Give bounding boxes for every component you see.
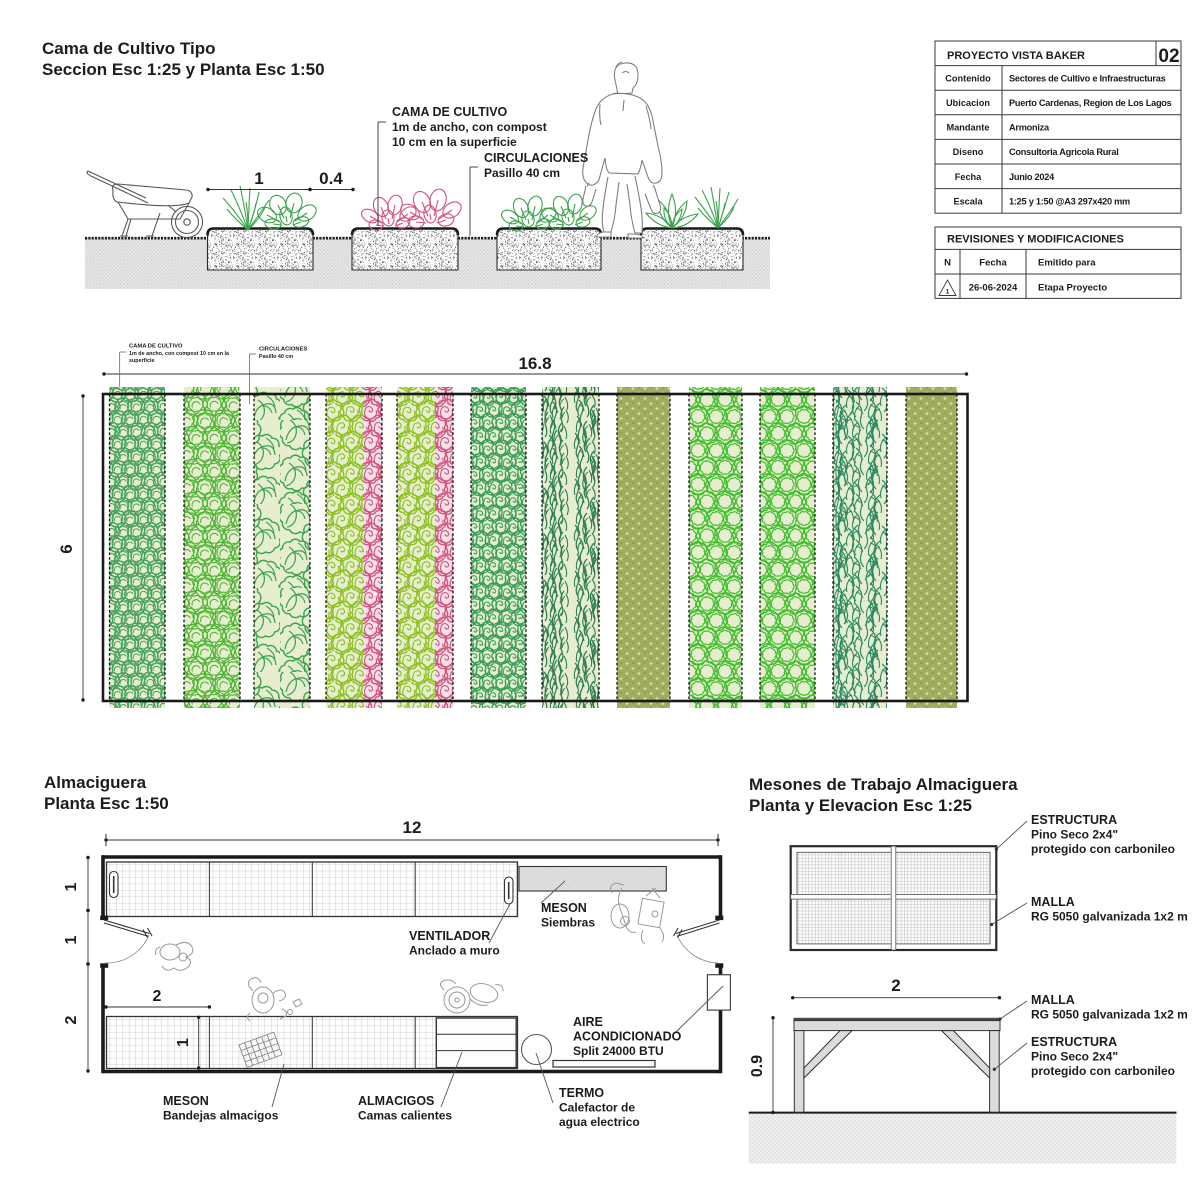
svg-text:MESON: MESON xyxy=(541,901,587,915)
svg-text:Siembras: Siembras xyxy=(541,916,595,930)
svg-text:RG 5050 galvanizada 1x2 m: RG 5050 galvanizada 1x2 m xyxy=(1031,910,1188,924)
svg-text:Armoniza: Armoniza xyxy=(1009,123,1050,133)
svg-text:1: 1 xyxy=(63,882,80,891)
svg-text:Sectores de Cultivo e Infraest: Sectores de Cultivo e Infraestructuras xyxy=(1009,73,1166,83)
svg-text:Anclado a muro: Anclado a muro xyxy=(409,944,500,958)
svg-text:AIRE: AIRE xyxy=(573,1015,603,1029)
svg-text:Escala: Escala xyxy=(953,196,983,206)
svg-text:6: 6 xyxy=(57,544,76,553)
svg-text:2: 2 xyxy=(63,1015,80,1024)
svg-text:Mandante: Mandante xyxy=(947,123,990,133)
svg-text:Contenido: Contenido xyxy=(945,73,991,83)
svg-text:CIRCULACIONES: CIRCULACIONES xyxy=(259,347,307,353)
svg-text:CAMA DE CULTIVO: CAMA DE CULTIVO xyxy=(129,344,183,350)
svg-text:ESTRUCTURA: ESTRUCTURA xyxy=(1031,813,1117,827)
svg-text:Split 24000 BTU: Split 24000 BTU xyxy=(573,1044,664,1058)
svg-text:Puerto Cardenas, Region de Los: Puerto Cardenas, Region de Los Lagos xyxy=(1009,98,1172,108)
svg-text:2: 2 xyxy=(153,988,162,1005)
svg-text:superficie: superficie xyxy=(129,358,154,364)
svg-text:MALLA: MALLA xyxy=(1031,895,1075,909)
svg-text:Pino Seco 2x4": Pino Seco 2x4" xyxy=(1031,828,1118,842)
svg-text:VENTILADOR: VENTILADOR xyxy=(409,929,490,943)
svg-text:Camas calientes: Camas calientes xyxy=(358,1109,452,1123)
svg-text:Planta y Elevacion Esc 1:25: Planta y Elevacion Esc 1:25 xyxy=(749,796,972,815)
svg-text:ESTRUCTURA: ESTRUCTURA xyxy=(1031,1035,1117,1049)
svg-text:Junio 2024: Junio 2024 xyxy=(1009,172,1055,182)
svg-text:Fecha: Fecha xyxy=(979,257,1007,268)
svg-text:RG 5050 galvanizada 1x2 m: RG 5050 galvanizada 1x2 m xyxy=(1031,1008,1188,1022)
svg-text:Bandejas almacigos: Bandejas almacigos xyxy=(163,1109,279,1123)
svg-text:10 cm en la superficie: 10 cm en la superficie xyxy=(392,135,517,149)
svg-text:Seccion Esc 1:25 y Planta Esc: Seccion Esc 1:25 y Planta Esc 1:50 xyxy=(42,60,325,79)
svg-text:1m de ancho, con compost: 1m de ancho, con compost xyxy=(392,120,547,134)
svg-text:Calefactor de: Calefactor de xyxy=(559,1101,635,1115)
svg-text:protegido con carbonileo: protegido con carbonileo xyxy=(1031,842,1175,856)
svg-text:Pino Seco 2x4": Pino Seco 2x4" xyxy=(1031,1050,1118,1064)
svg-text:Emitido para: Emitido para xyxy=(1038,257,1096,268)
svg-text:1:25 y 1:50 @A3 297x420 mm: 1:25 y 1:50 @A3 297x420 mm xyxy=(1009,196,1130,206)
svg-text:CIRCULACIONES: CIRCULACIONES xyxy=(484,151,588,165)
svg-text:1: 1 xyxy=(63,935,80,944)
svg-text:CAMA DE CULTIVO: CAMA DE CULTIVO xyxy=(392,105,508,119)
svg-text:PROYECTO VISTA BAKER: PROYECTO VISTA BAKER xyxy=(947,50,1085,62)
svg-text:Almaciguera: Almaciguera xyxy=(44,773,147,792)
svg-text:Pasillo 40 cm: Pasillo 40 cm xyxy=(484,166,560,180)
svg-text:N: N xyxy=(944,257,951,268)
svg-text:2: 2 xyxy=(891,976,900,995)
svg-text:ALMACIGOS: ALMACIGOS xyxy=(358,1094,434,1108)
svg-text:1m de ancho, con compost 10 cm: 1m de ancho, con compost 10 cm en la xyxy=(129,351,230,357)
svg-text:Diseno: Diseno xyxy=(953,147,984,157)
svg-text:Consultoria Agricola Rural: Consultoria Agricola Rural xyxy=(1009,147,1119,157)
svg-text:16.8: 16.8 xyxy=(518,354,551,373)
svg-text:ACONDICIONADO: ACONDICIONADO xyxy=(573,1030,682,1044)
svg-text:26-06-2024: 26-06-2024 xyxy=(969,282,1018,293)
svg-text:protegido con carbonileo: protegido con carbonileo xyxy=(1031,1064,1175,1078)
svg-text:Pasillo 40 cm: Pasillo 40 cm xyxy=(259,354,293,360)
svg-text:02: 02 xyxy=(1158,46,1179,67)
svg-text:agua electrico: agua electrico xyxy=(559,1115,640,1129)
svg-text:Fecha: Fecha xyxy=(955,172,982,182)
svg-text:0.4: 0.4 xyxy=(319,169,343,188)
svg-text:Ubicacion: Ubicacion xyxy=(946,98,990,108)
svg-text:1: 1 xyxy=(946,289,950,296)
svg-text:MESON: MESON xyxy=(163,1094,209,1108)
svg-text:MALLA: MALLA xyxy=(1031,993,1075,1007)
svg-text:12: 12 xyxy=(403,818,422,837)
svg-text:0.9: 0.9 xyxy=(749,1055,766,1077)
svg-text:TERMO: TERMO xyxy=(559,1086,604,1100)
svg-text:1: 1 xyxy=(254,169,263,188)
svg-text:Mesones de Trabajo Almaciguera: Mesones de Trabajo Almaciguera xyxy=(749,775,1018,794)
svg-text:1: 1 xyxy=(175,1038,192,1047)
svg-text:Planta Esc 1:50: Planta Esc 1:50 xyxy=(44,794,169,813)
svg-text:Etapa Proyecto: Etapa Proyecto xyxy=(1038,282,1107,293)
svg-text:Cama de Cultivo Tipo: Cama de Cultivo Tipo xyxy=(42,39,216,58)
svg-text:REVISIONES Y MODIFICACIONES: REVISIONES Y MODIFICACIONES xyxy=(947,234,1124,246)
